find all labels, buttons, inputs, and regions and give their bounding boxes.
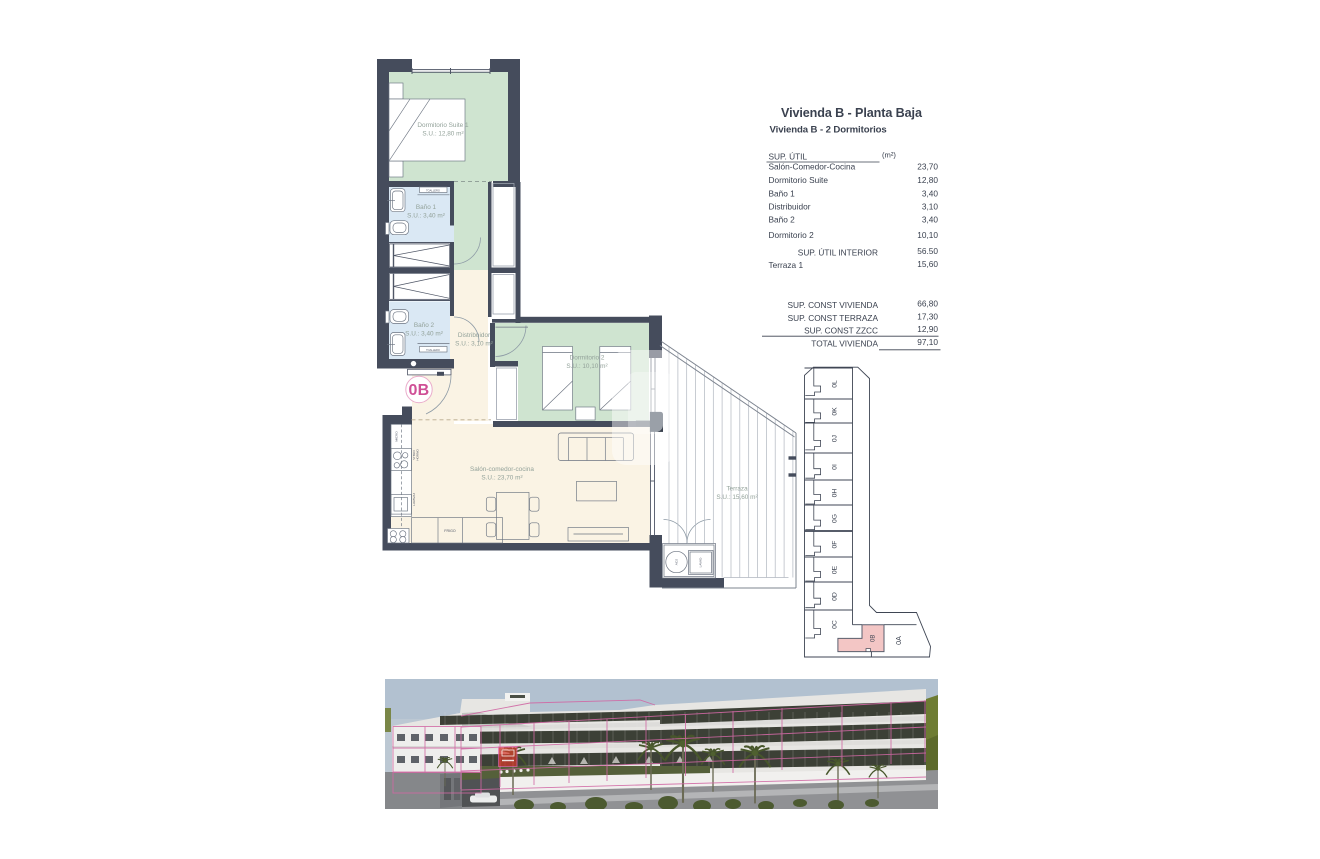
svg-text:TOALLERO: TOALLERO [426,188,440,192]
svg-text:0E: 0E [832,565,839,574]
svg-text:0B: 0B [871,635,877,642]
svg-text:LAVAD: LAVAD [699,557,703,567]
svg-text:Baño 2: Baño 2 [769,215,796,225]
svg-text:Terraza 1: Terraza 1 [769,260,804,270]
svg-text:12,90: 12,90 [917,324,938,334]
svg-text:Baño 2: Baño 2 [414,322,435,329]
svg-text:SUP. ÚTIL: SUP. ÚTIL [769,152,808,162]
svg-text:TOALLERO: TOALLERO [426,348,440,352]
svg-text:TOTAL VIVIENDA: TOTAL VIVIENDA [811,339,878,349]
svg-text:HORNO: HORNO [416,449,420,461]
svg-text:MICRO: MICRO [395,431,399,442]
svg-text:S.U.: 3,40 m²: S.U.: 3,40 m² [405,330,443,337]
svg-text:3,40: 3,40 [922,215,939,225]
svg-text:17,30: 17,30 [917,312,938,322]
svg-text:0I: 0I [832,464,839,470]
svg-text:SUP. ÚTIL INTERIOR: SUP. ÚTIL INTERIOR [798,247,878,257]
svg-text:0H: 0H [832,489,839,498]
svg-text:3,40: 3,40 [922,188,939,198]
svg-text:SUP. CONST TERRAZA: SUP. CONST TERRAZA [788,313,879,323]
svg-text:Dormitorio 2: Dormitorio 2 [769,230,815,240]
svg-text:Dormitorio 2: Dormitorio 2 [570,355,605,362]
svg-text:LAVAVAJ: LAVAVAJ [412,493,416,506]
svg-text:97,10: 97,10 [917,337,938,347]
svg-text:12,80: 12,80 [917,175,938,185]
svg-text:ACS: ACS [675,559,679,565]
svg-text:S.U.: 15,60 m²: S.U.: 15,60 m² [716,494,757,501]
svg-text:Vivienda B - 2 Dormitorios: Vivienda B - 2 Dormitorios [770,124,887,135]
svg-text:10,10: 10,10 [917,230,938,240]
svg-text:Dormitorio Suite: Dormitorio Suite [769,175,829,185]
svg-text:Salón-comedor-cocina: Salón-comedor-cocina [470,466,534,473]
svg-text:0F: 0F [832,541,839,549]
svg-text:SUP. CONST VIVIENDA: SUP. CONST VIVIENDA [787,300,878,310]
svg-text:Distribuidor: Distribuidor [769,202,811,212]
svg-text:S.U.: 12,80 m²: S.U.: 12,80 m² [422,130,463,137]
svg-text:SUP. CONST ZZCC: SUP. CONST ZZCC [804,326,878,336]
svg-text:3,10: 3,10 [922,202,939,212]
svg-text:0L: 0L [832,380,839,388]
svg-text:0J: 0J [832,435,839,442]
svg-text:Distribuidor: Distribuidor [458,332,491,339]
svg-text:Baño 1: Baño 1 [769,188,796,198]
svg-text:56.50: 56.50 [917,246,938,256]
svg-text:23,70: 23,70 [917,162,938,172]
svg-text:FRIGO: FRIGO [444,529,456,533]
svg-text:Vivienda B - Planta Baja: Vivienda B - Planta Baja [781,106,923,120]
svg-text:S.U.: 3,10 m²: S.U.: 3,10 m² [455,340,493,347]
svg-text:0D: 0D [832,592,839,601]
svg-text:0K: 0K [832,407,839,416]
svg-text:S.U.: 3,40 m²: S.U.: 3,40 m² [407,212,445,219]
svg-text:0B: 0B [408,382,429,399]
svg-text:0G: 0G [832,514,839,523]
svg-text:Salón-Comedor-Cocina: Salón-Comedor-Cocina [769,162,856,172]
svg-text:S.U.: 10,10 m²: S.U.: 10,10 m² [566,363,607,370]
svg-text:Dormitorio Suite 1: Dormitorio Suite 1 [417,122,469,129]
svg-text:Terraza: Terraza [726,486,748,493]
svg-text:15,60: 15,60 [917,259,938,269]
svg-text:Baño 1: Baño 1 [416,204,437,211]
svg-text:0A: 0A [894,636,903,645]
svg-text:S.U.: 23,70 m²: S.U.: 23,70 m² [481,474,522,481]
svg-text:66,80: 66,80 [917,299,938,309]
svg-text:0C: 0C [832,620,839,629]
svg-text:(m²): (m²) [882,151,896,160]
